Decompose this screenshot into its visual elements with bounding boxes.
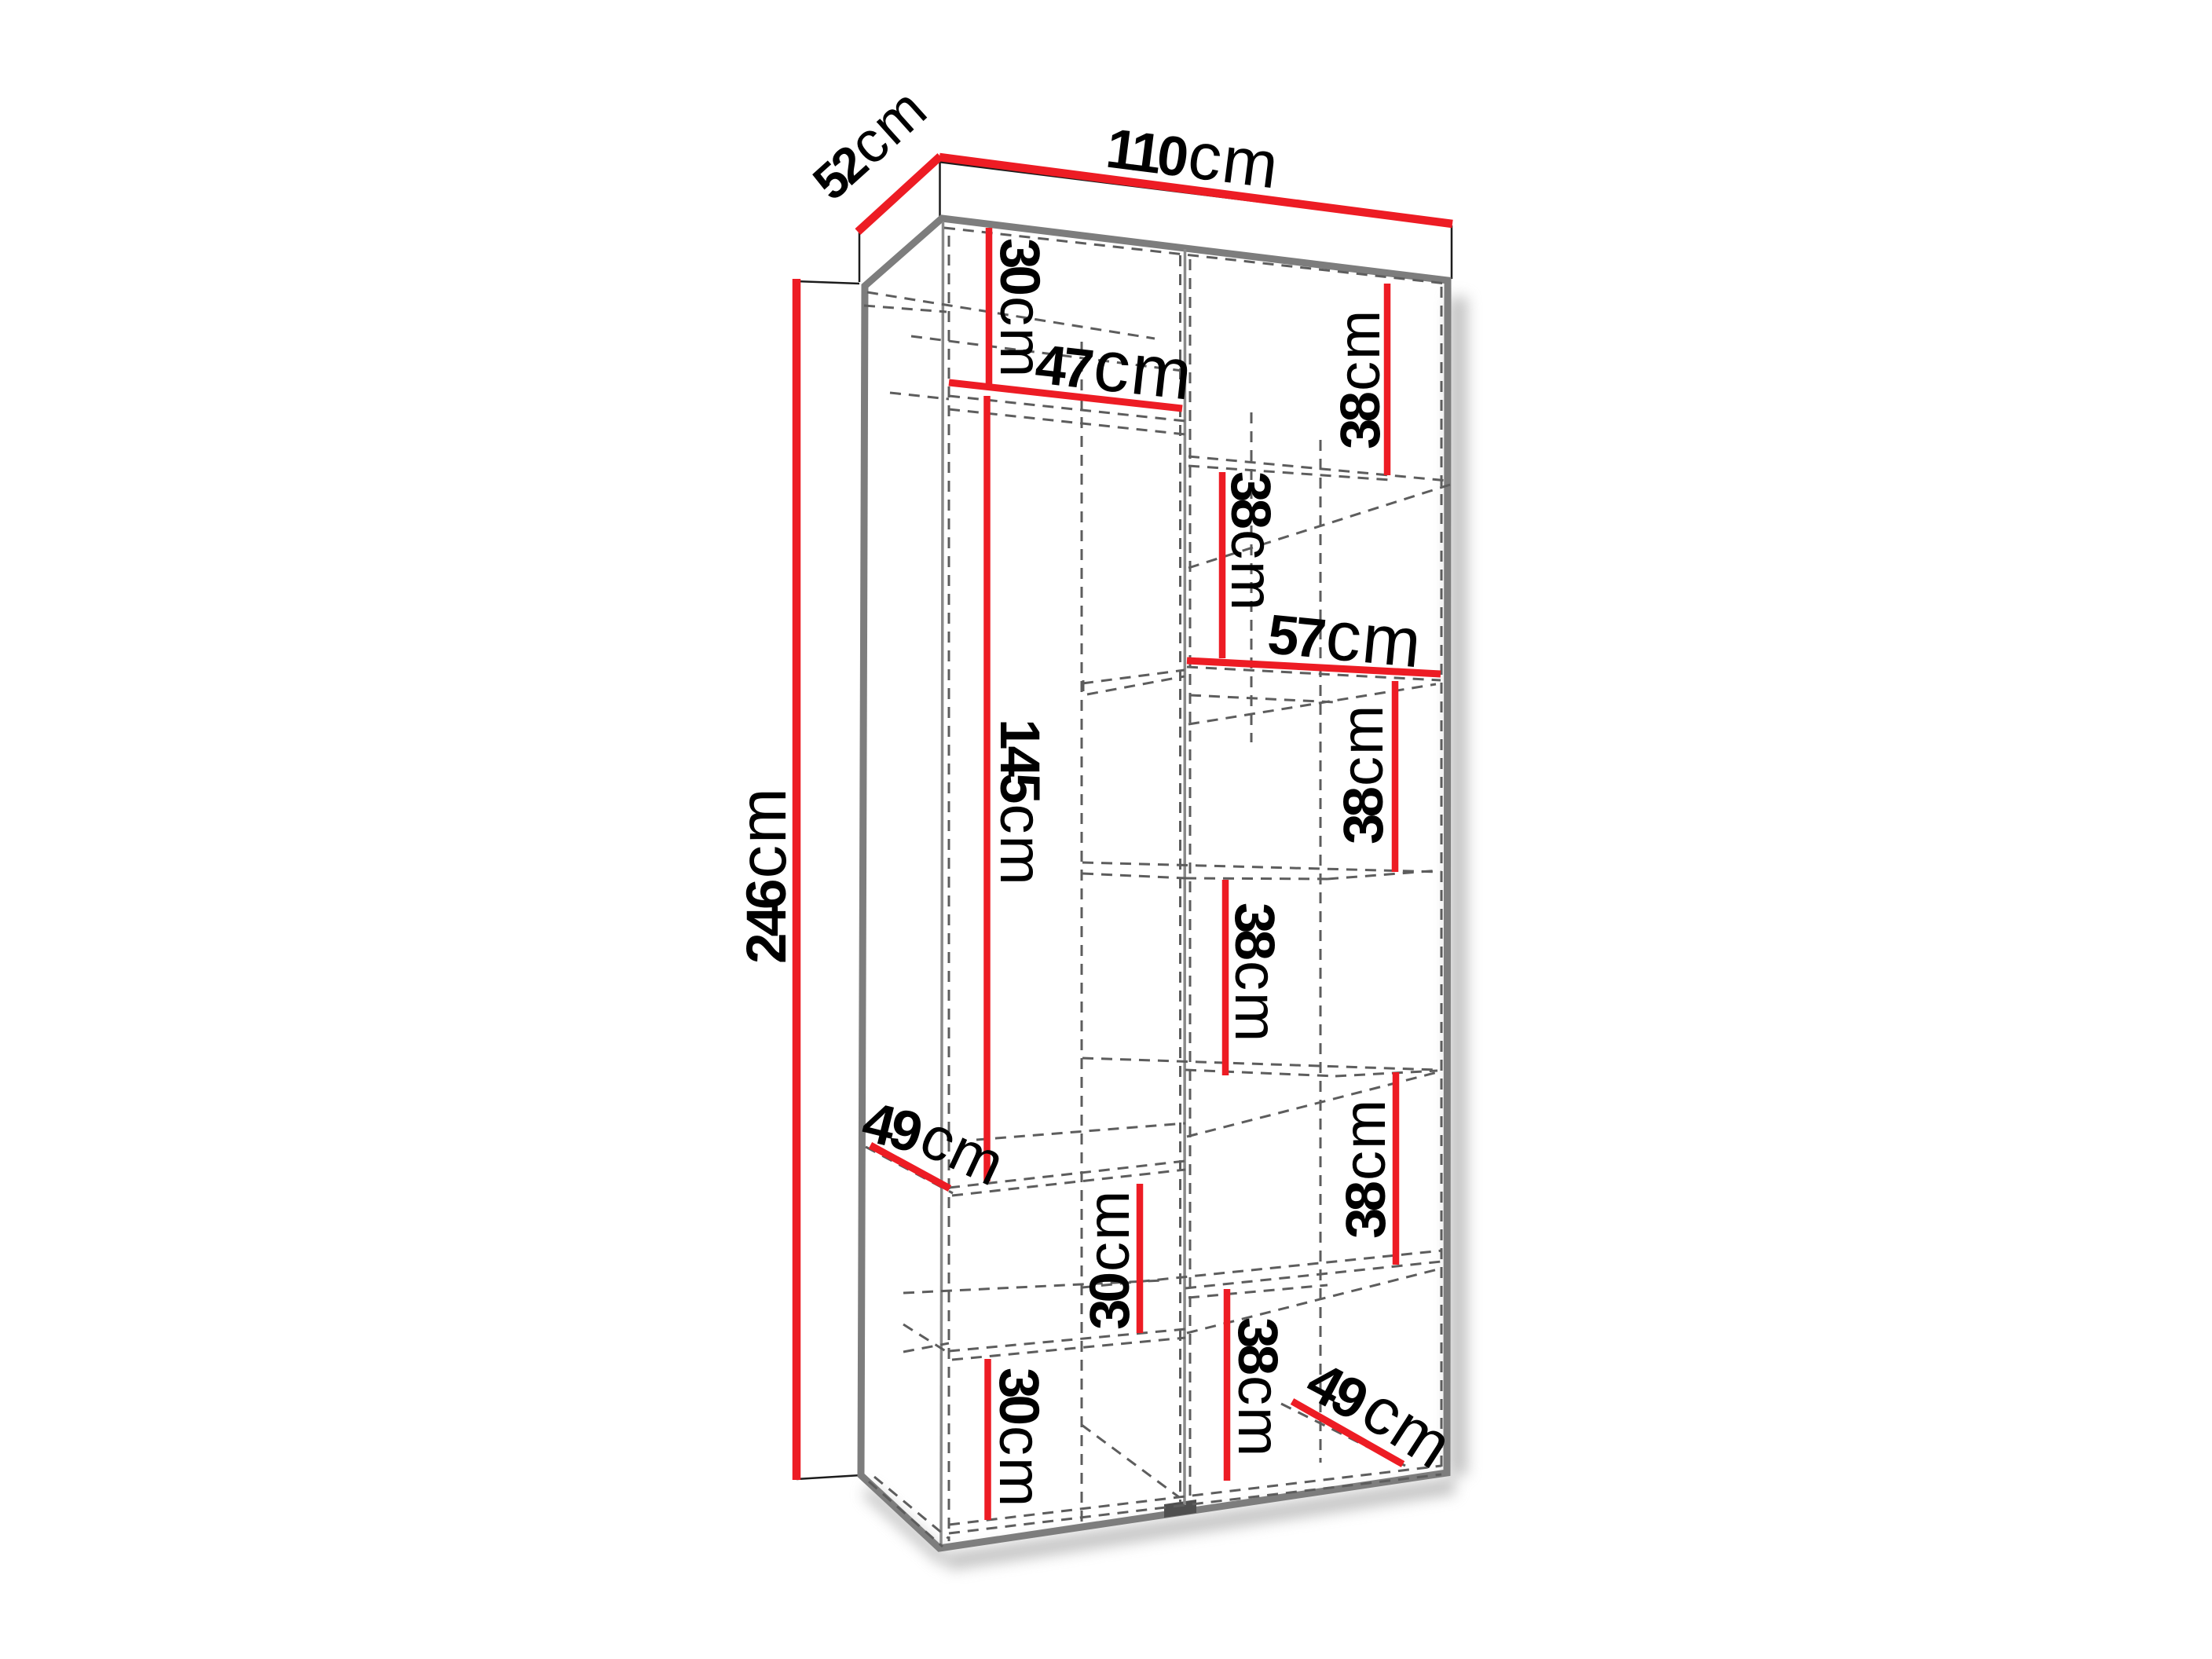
svg-text:246cm: 246cm bbox=[726, 786, 800, 964]
svg-text:38cm: 38cm bbox=[1331, 1098, 1398, 1239]
svg-text:30cm: 30cm bbox=[987, 1368, 1053, 1508]
svg-text:38cm: 38cm bbox=[1329, 704, 1396, 844]
svg-text:30cm: 30cm bbox=[1075, 1189, 1142, 1330]
svg-text:38cm: 38cm bbox=[1326, 309, 1393, 449]
svg-text:38cm: 38cm bbox=[1222, 903, 1289, 1043]
svg-text:38cm: 38cm bbox=[1225, 1317, 1292, 1458]
svg-text:38cm: 38cm bbox=[1218, 471, 1285, 612]
